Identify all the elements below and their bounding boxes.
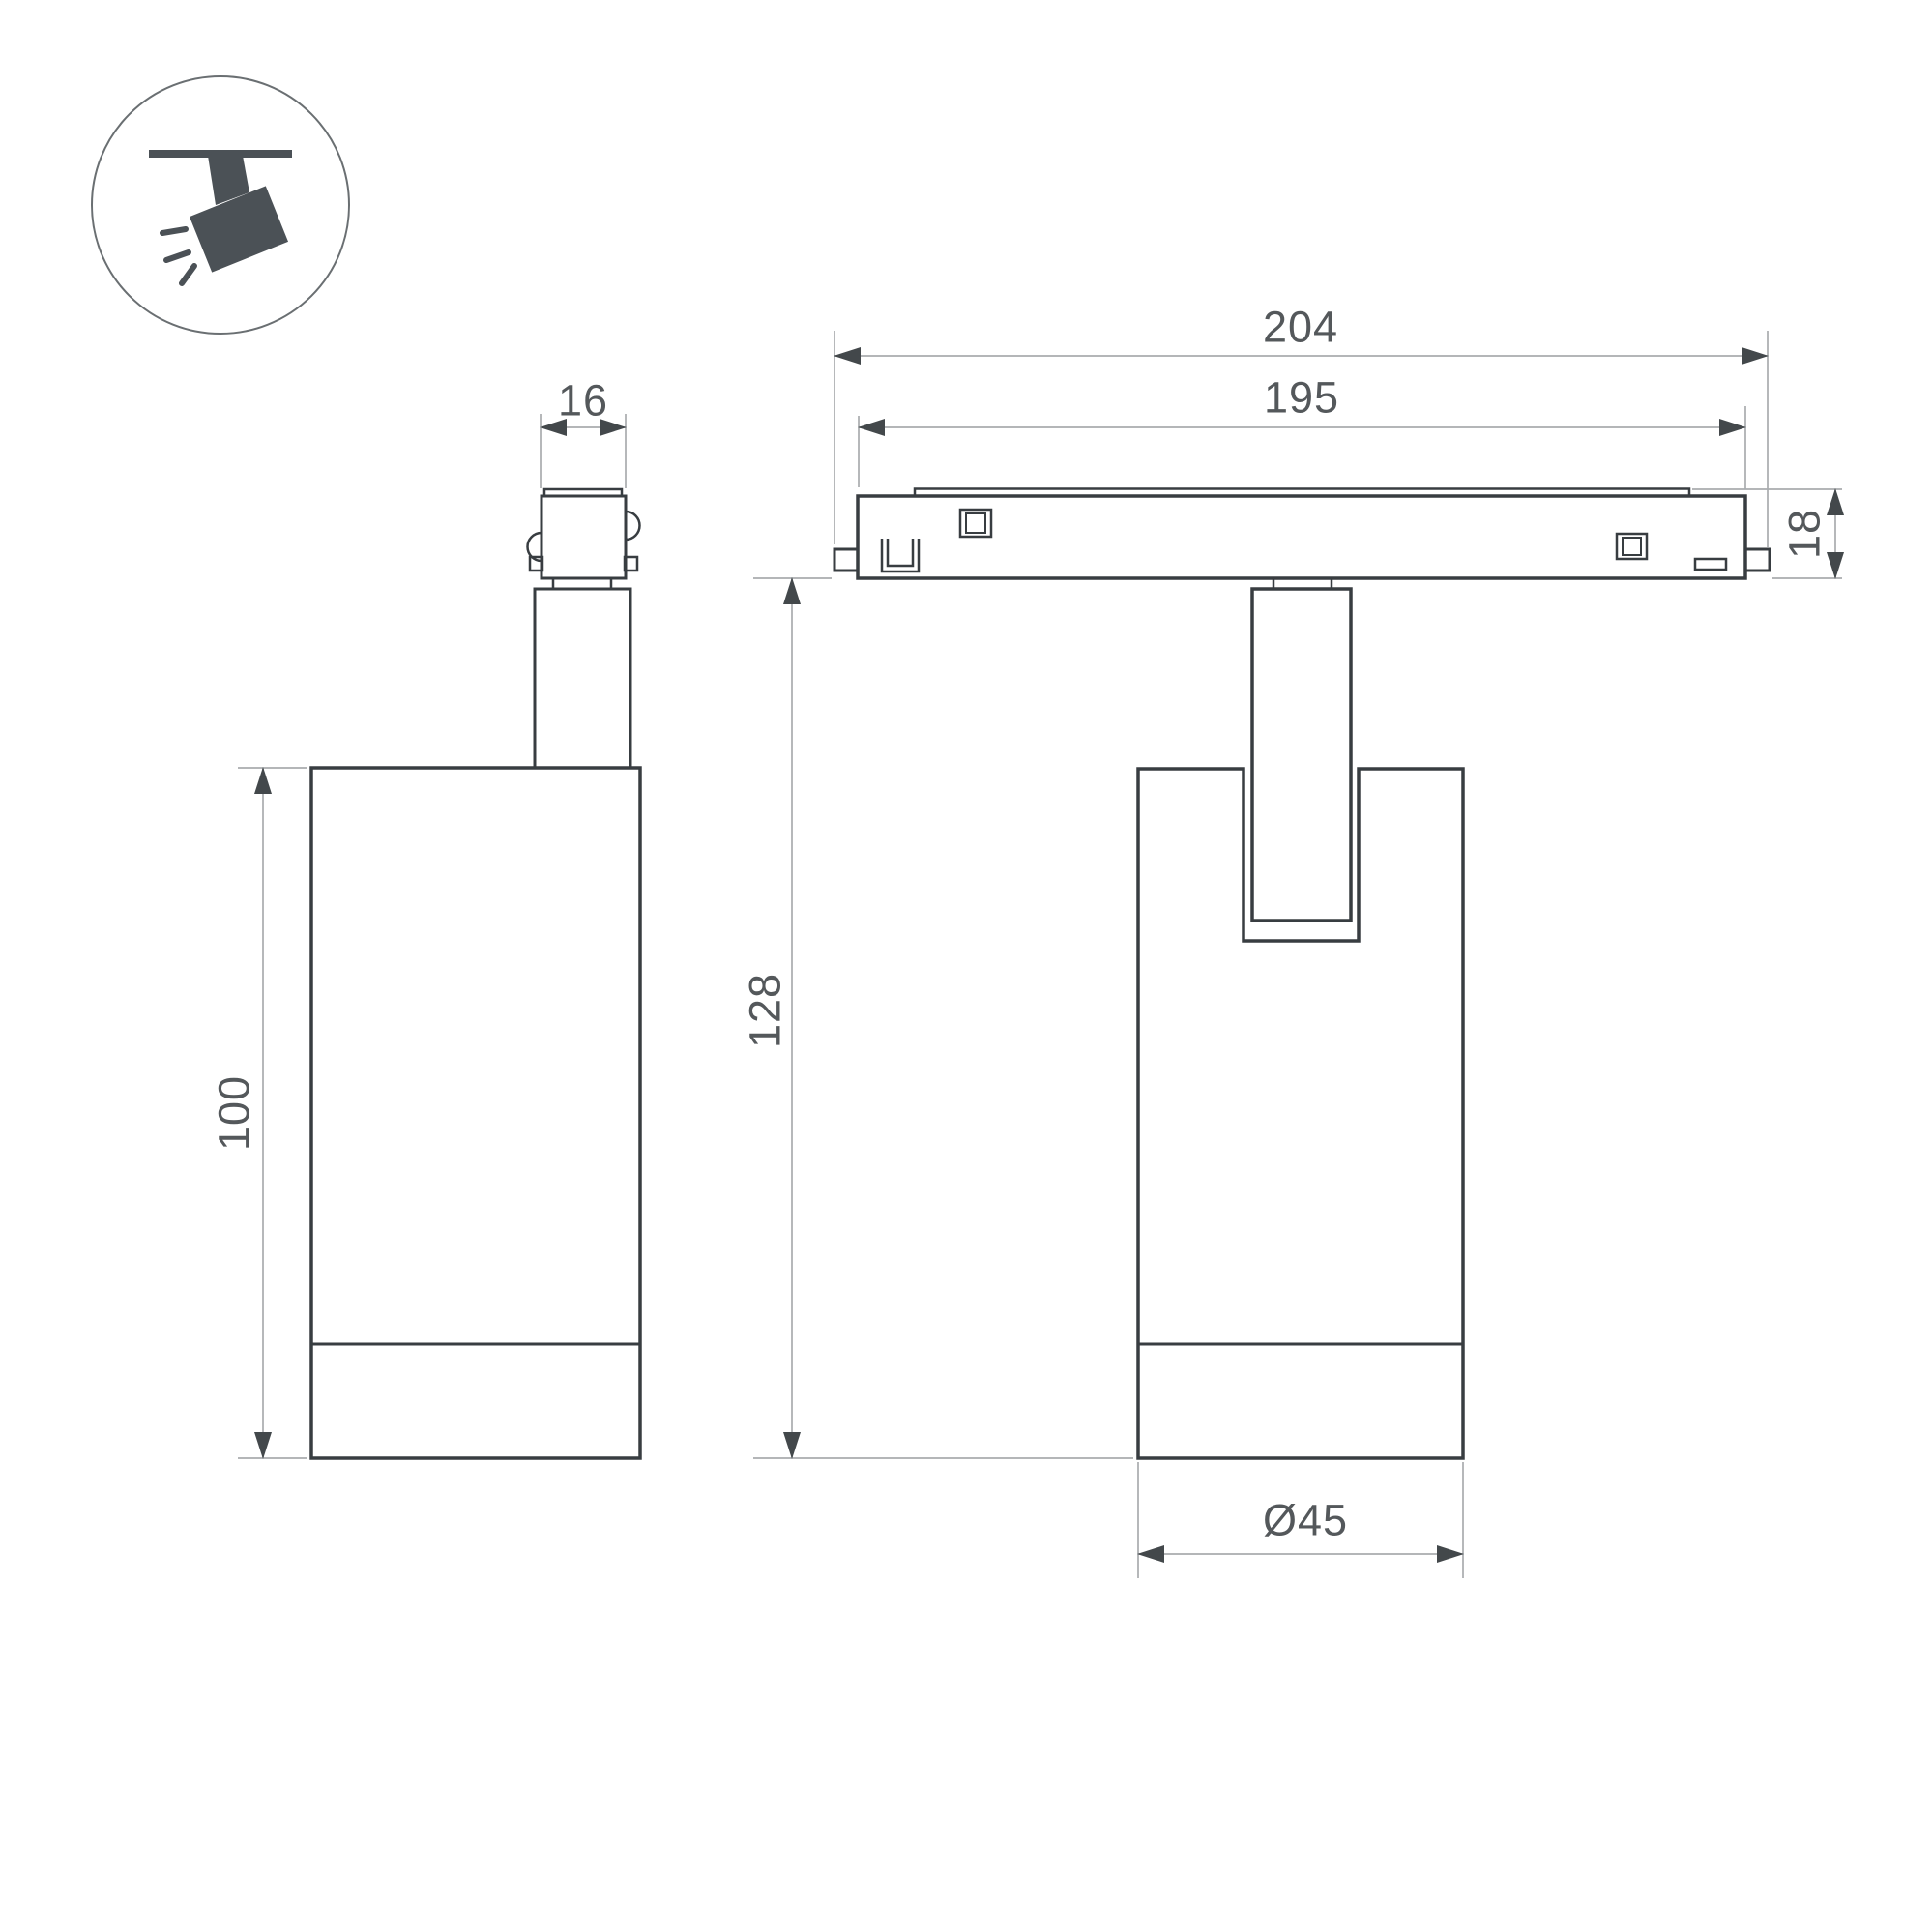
side-view: 16 100 [210, 376, 641, 1459]
dim-18-label: 18 [1780, 509, 1830, 559]
icon-light-ray-2 [166, 252, 189, 260]
dim-195-label: 195 [1264, 373, 1339, 423]
technical-drawing: 16 100 204 195 [0, 0, 1932, 1932]
icon-light-ray-3 [182, 266, 194, 283]
dim-100-label: 100 [210, 1075, 259, 1151]
dim-45-label: Ø45 [1263, 1496, 1348, 1545]
rail-window-right-inner [1623, 538, 1641, 555]
pivot-stem [1252, 589, 1351, 921]
dim-128-label: 128 [741, 973, 790, 1048]
icon-light-ray-1 [162, 229, 186, 233]
lamp-body-front [1138, 769, 1463, 1458]
track-adapter [542, 496, 626, 578]
connector-neck [535, 589, 630, 768]
adapter-clip-right [626, 512, 640, 540]
dim-16-label: 16 [558, 376, 608, 425]
lamp-body-side [311, 768, 640, 1458]
mount-clip-inner [888, 539, 913, 566]
drawing-page: 16 100 204 195 [0, 0, 1932, 1932]
track-spotlight-icon [92, 76, 349, 334]
dim-204-label: 204 [1263, 303, 1338, 352]
connector-nub-side [553, 578, 611, 589]
rail-end-tab-left [834, 549, 858, 571]
rail-slot-right [1695, 559, 1726, 570]
rail-window-left-inner [966, 513, 985, 533]
icon-lamp-head [190, 186, 288, 272]
front-view: 204 195 18 128 [741, 303, 1843, 1579]
rail-end-tab-right [1745, 549, 1770, 571]
